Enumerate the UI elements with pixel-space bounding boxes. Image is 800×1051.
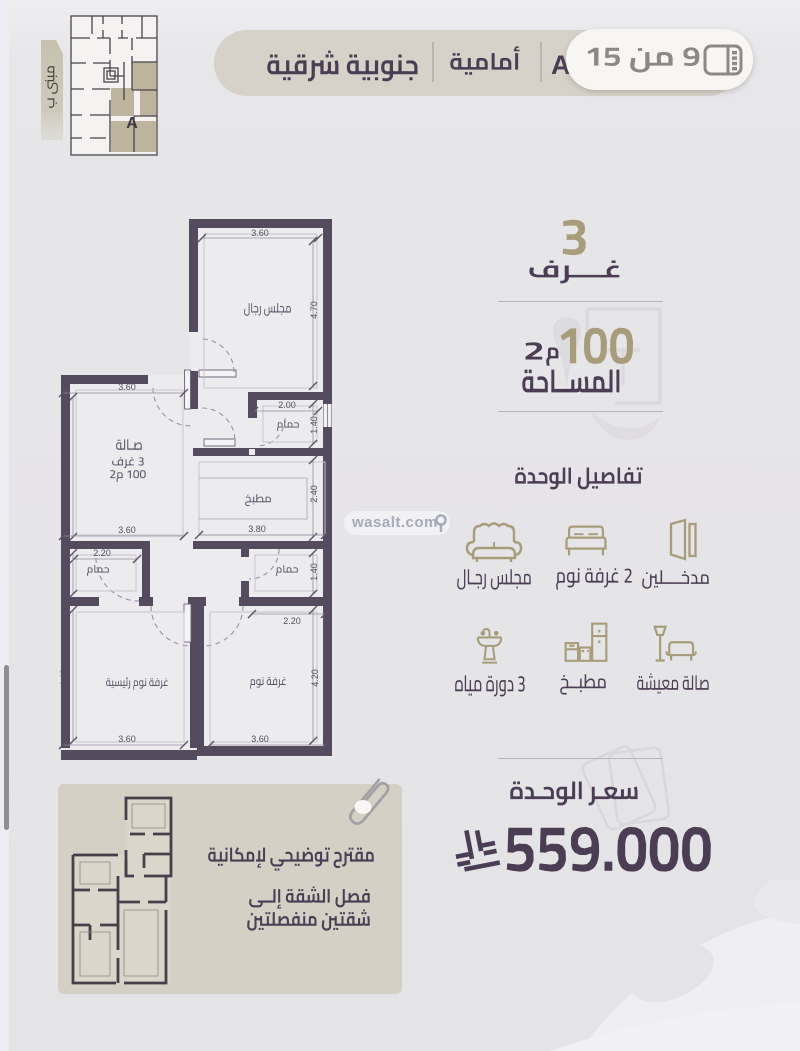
svg-text:3.60: 3.60 xyxy=(251,228,269,238)
svg-text:1.40: 1.40 xyxy=(309,416,319,434)
svg-text:4.20: 4.20 xyxy=(310,669,320,687)
svg-text:3.60: 3.60 xyxy=(118,525,136,535)
svg-text:1.40: 1.40 xyxy=(61,563,71,581)
svg-text:3.60: 3.60 xyxy=(118,382,136,392)
svg-text:2.20: 2.20 xyxy=(93,548,111,558)
svg-text:2.20: 2.20 xyxy=(283,616,301,626)
svg-text:2.40: 2.40 xyxy=(309,485,319,503)
svg-text:1.40: 1.40 xyxy=(309,563,319,581)
svg-text:4.40: 4.40 xyxy=(59,669,69,687)
svg-text:3.60: 3.60 xyxy=(118,734,136,744)
svg-text:3.80: 3.80 xyxy=(248,524,266,534)
svg-text:3.60: 3.60 xyxy=(251,734,269,744)
svg-text:4.70: 4.70 xyxy=(309,301,319,319)
svg-text:2.00: 2.00 xyxy=(278,400,296,410)
svg-text:4.50: 4.50 xyxy=(61,449,71,467)
